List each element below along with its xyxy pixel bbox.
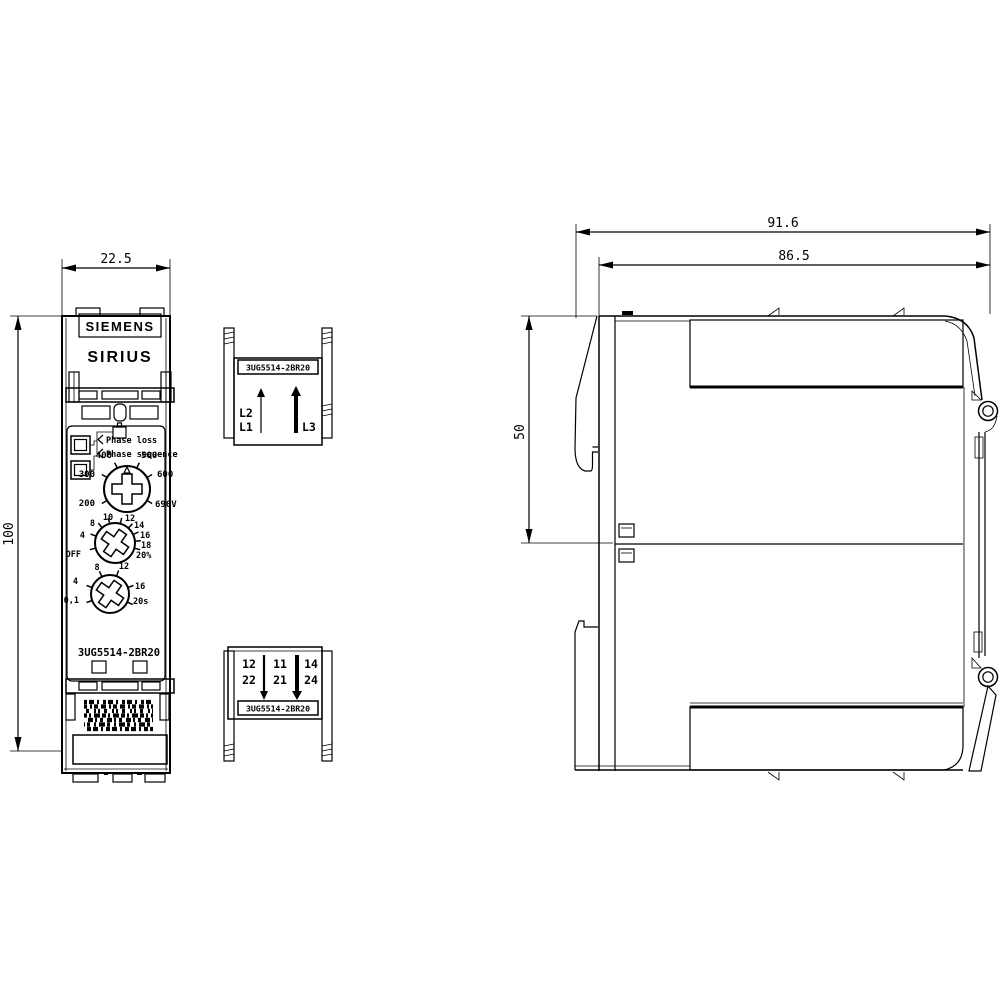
time-8: 8 bbox=[94, 563, 99, 573]
voltage-300: 300 bbox=[79, 470, 95, 480]
terminal-L1: L1 bbox=[239, 420, 253, 434]
top-connector-part-number: 3UG5514-2BR20 bbox=[246, 363, 310, 373]
threshold-dial-knob bbox=[96, 524, 134, 562]
front-part-number: 3UG5514-2BR20 bbox=[78, 647, 160, 659]
terminal-22: 22 bbox=[242, 673, 256, 687]
terminal-14: 14 bbox=[304, 657, 318, 671]
label-plate bbox=[73, 735, 167, 764]
threshold-10: 10 bbox=[103, 513, 113, 523]
bottom-connector: 12 11 14 22 21 24 3UG5514-2BR20 bbox=[224, 647, 332, 761]
phase-loss-label: Phase loss bbox=[106, 436, 157, 446]
front-feet bbox=[73, 772, 165, 782]
voltage-dial-knob bbox=[112, 474, 142, 504]
threshold-dial: OFF 4 8 10 12 14 16 18 20% bbox=[66, 513, 153, 563]
height-upper-label: 50 bbox=[513, 424, 528, 440]
top-connector-arrows bbox=[257, 386, 301, 433]
din-hook bbox=[575, 316, 598, 471]
voltage-200: 200 bbox=[79, 499, 95, 509]
threshold-18: 18 bbox=[141, 541, 151, 551]
time-0-1: 0,1 bbox=[64, 596, 79, 606]
threshold-off: OFF bbox=[66, 550, 81, 560]
siemens-logo: SIEMENS bbox=[79, 314, 161, 337]
terminal-11: 11 bbox=[273, 657, 287, 671]
depth-body-label: 86.5 bbox=[778, 249, 809, 264]
time-12: 12 bbox=[119, 562, 129, 572]
dim-height-50: 50 bbox=[513, 316, 613, 543]
voltage-690V: 690V bbox=[155, 500, 177, 510]
threshold-20pct: 20% bbox=[136, 551, 152, 561]
side-top-terminal-block bbox=[690, 308, 963, 387]
technical-drawing: 100 22.5 SIEMENS SIRIUS bbox=[0, 0, 1000, 1000]
time-dial: 0,1 4 8 12 16 20s bbox=[64, 562, 149, 613]
depth-overall-label: 91.6 bbox=[767, 216, 798, 231]
upper-terminal-area bbox=[66, 372, 174, 421]
threshold-4: 4 bbox=[80, 531, 85, 541]
voltage-600: 600 bbox=[157, 470, 173, 480]
series-label: SIRIUS bbox=[87, 349, 152, 366]
front-view: 100 22.5 SIEMENS SIRIUS bbox=[2, 252, 178, 782]
datamatrix-code bbox=[84, 702, 153, 729]
side-left-foot bbox=[575, 621, 598, 770]
voltage-dial: 400 500 300 600 200 690V bbox=[79, 451, 178, 512]
voltage-400: 400 bbox=[96, 451, 112, 461]
dim-depth-91-6: 91.6 bbox=[576, 216, 990, 318]
dim-depth-86-5: 86.5 bbox=[599, 249, 990, 318]
time-20s: 20s bbox=[133, 597, 148, 607]
time-16: 16 bbox=[135, 582, 145, 592]
height-dim-label: 100 bbox=[2, 522, 17, 545]
dim-height-100: 100 bbox=[2, 316, 62, 751]
side-view: 91.6 86.5 50 bbox=[513, 216, 998, 780]
terminal-L3: L3 bbox=[302, 420, 316, 434]
phase-loss-led bbox=[71, 436, 90, 454]
threshold-16: 16 bbox=[140, 531, 150, 541]
terminal-12: 12 bbox=[242, 657, 256, 671]
top-connector: 3UG5514-2BR20 L2 L1 L3 bbox=[224, 328, 332, 445]
phase-loss-arrow-icon bbox=[98, 435, 103, 444]
terminal-L2: L2 bbox=[239, 406, 253, 420]
width-dim-label: 22.5 bbox=[100, 252, 131, 267]
terminal-24: 24 bbox=[304, 673, 318, 687]
bottom-connector-part-number: 3UG5514-2BR20 bbox=[246, 704, 310, 714]
threshold-8: 8 bbox=[90, 519, 95, 529]
side-bottom-terminal-block bbox=[690, 703, 963, 780]
brand-label: SIEMENS bbox=[85, 319, 154, 334]
threshold-14: 14 bbox=[134, 521, 144, 531]
terminal-21: 21 bbox=[273, 673, 287, 687]
lower-terminal-area bbox=[66, 661, 174, 720]
side-body bbox=[575, 311, 964, 771]
voltage-500: 500 bbox=[141, 451, 157, 461]
drawing-canvas: 100 22.5 SIEMENS SIRIUS bbox=[0, 0, 1000, 1000]
time-4: 4 bbox=[73, 577, 78, 587]
side-windows bbox=[619, 524, 634, 562]
dim-width-22-5: 22.5 bbox=[62, 252, 170, 316]
